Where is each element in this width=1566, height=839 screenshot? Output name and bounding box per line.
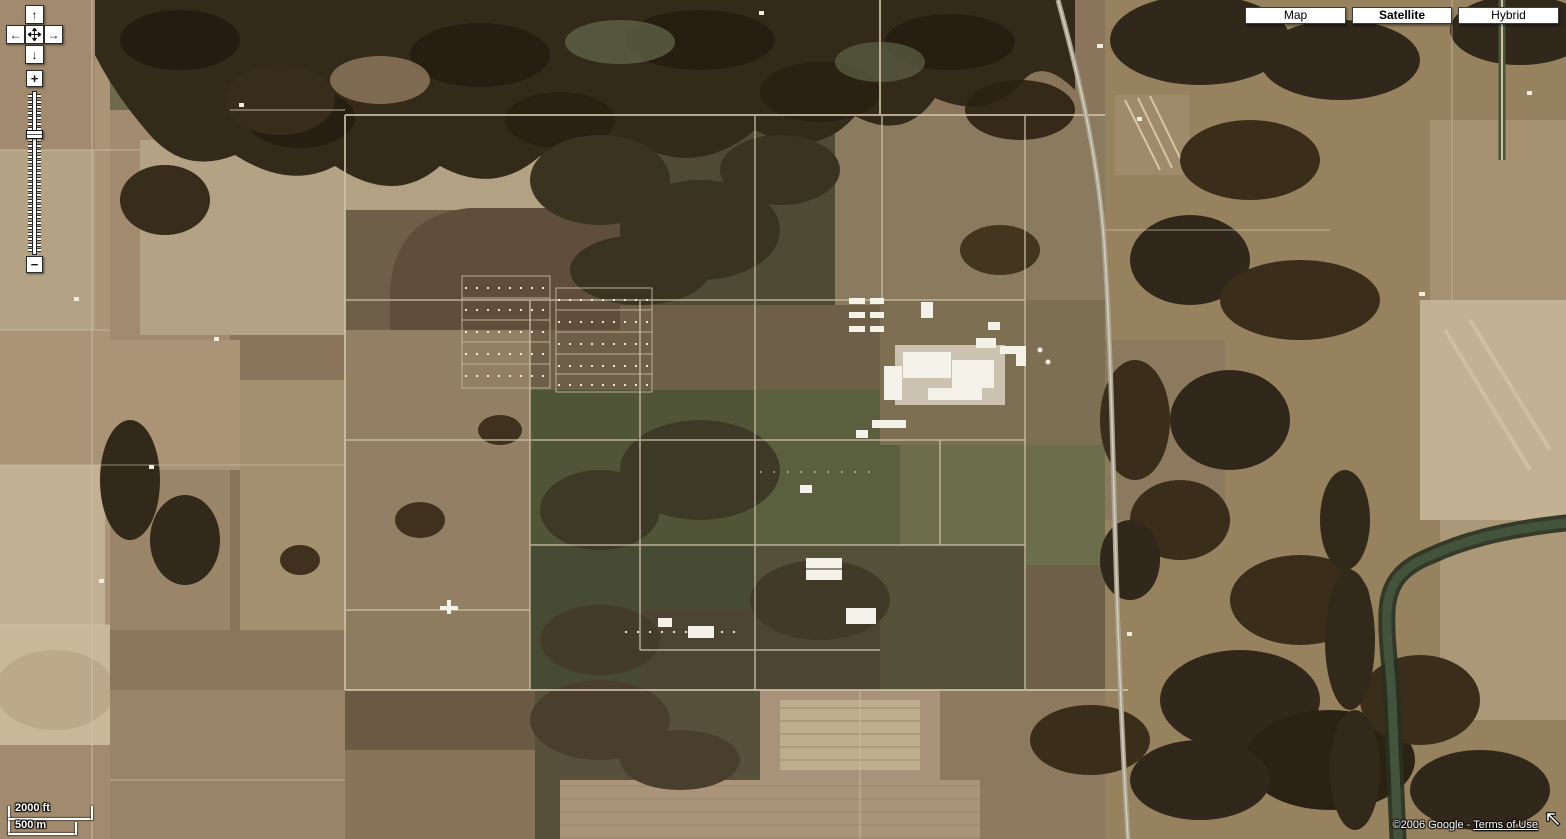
move-icon xyxy=(28,28,41,41)
arrow-down-icon: ↓ xyxy=(32,49,38,61)
zoom-slider-handle[interactable] xyxy=(26,130,43,139)
pan-left-button[interactable]: ← xyxy=(6,25,25,44)
pan-down-button[interactable]: ↓ xyxy=(25,45,44,64)
plus-icon: + xyxy=(31,71,39,86)
arrow-right-icon: → xyxy=(48,29,60,41)
arrow-left-icon: ← xyxy=(10,29,22,41)
scale-bar-left-tick xyxy=(8,806,10,835)
scale-bar-metric-bar xyxy=(8,833,77,835)
google-maps-viewport: ↑ ← → ↓ + − xyxy=(0,0,1566,839)
pan-right-button[interactable]: → xyxy=(44,25,63,44)
pan-up-button[interactable]: ↑ xyxy=(25,5,44,24)
attribution-separator: - xyxy=(1464,819,1474,831)
mouse-cursor-icon xyxy=(1544,810,1561,827)
map-type-button-satellite[interactable]: Satellite xyxy=(1352,7,1452,24)
zoom-out-button[interactable]: − xyxy=(26,256,43,273)
zoom-in-button[interactable]: + xyxy=(26,70,43,87)
scale-bar-metric-tick xyxy=(75,822,77,835)
pan-center-button[interactable] xyxy=(25,25,44,44)
terms-of-use-link[interactable]: Terms of Use xyxy=(1473,819,1538,831)
map-type-button-hybrid[interactable]: Hybrid xyxy=(1458,7,1559,24)
satellite-map[interactable] xyxy=(0,0,1566,839)
minus-icon: − xyxy=(31,257,39,272)
attribution: ©2006 Google - Terms of Use xyxy=(1393,819,1538,831)
zoom-slider-track[interactable] xyxy=(32,91,37,255)
scale-imperial-label: 2000 ft xyxy=(15,802,50,814)
scale-bar-imperial-tick xyxy=(91,806,93,820)
arrow-up-icon: ↑ xyxy=(32,9,38,21)
map-type-button-map[interactable]: Map xyxy=(1245,7,1346,24)
copyright-text: ©2006 Google xyxy=(1393,819,1464,831)
scale-metric-label: 500 m xyxy=(15,819,46,831)
